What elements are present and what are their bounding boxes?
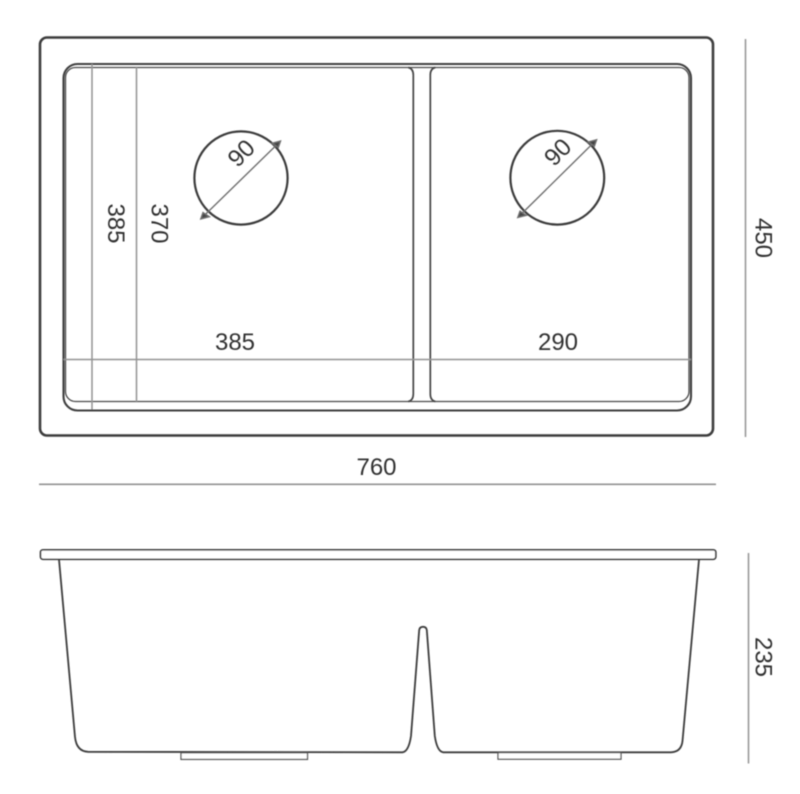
svg-text:235: 235 [749, 637, 776, 677]
svg-text:450: 450 [749, 218, 776, 258]
svg-text:385: 385 [102, 203, 129, 243]
svg-text:370: 370 [145, 203, 172, 243]
svg-text:290: 290 [538, 329, 578, 356]
svg-text:385: 385 [215, 329, 255, 356]
svg-text:760: 760 [356, 454, 396, 481]
